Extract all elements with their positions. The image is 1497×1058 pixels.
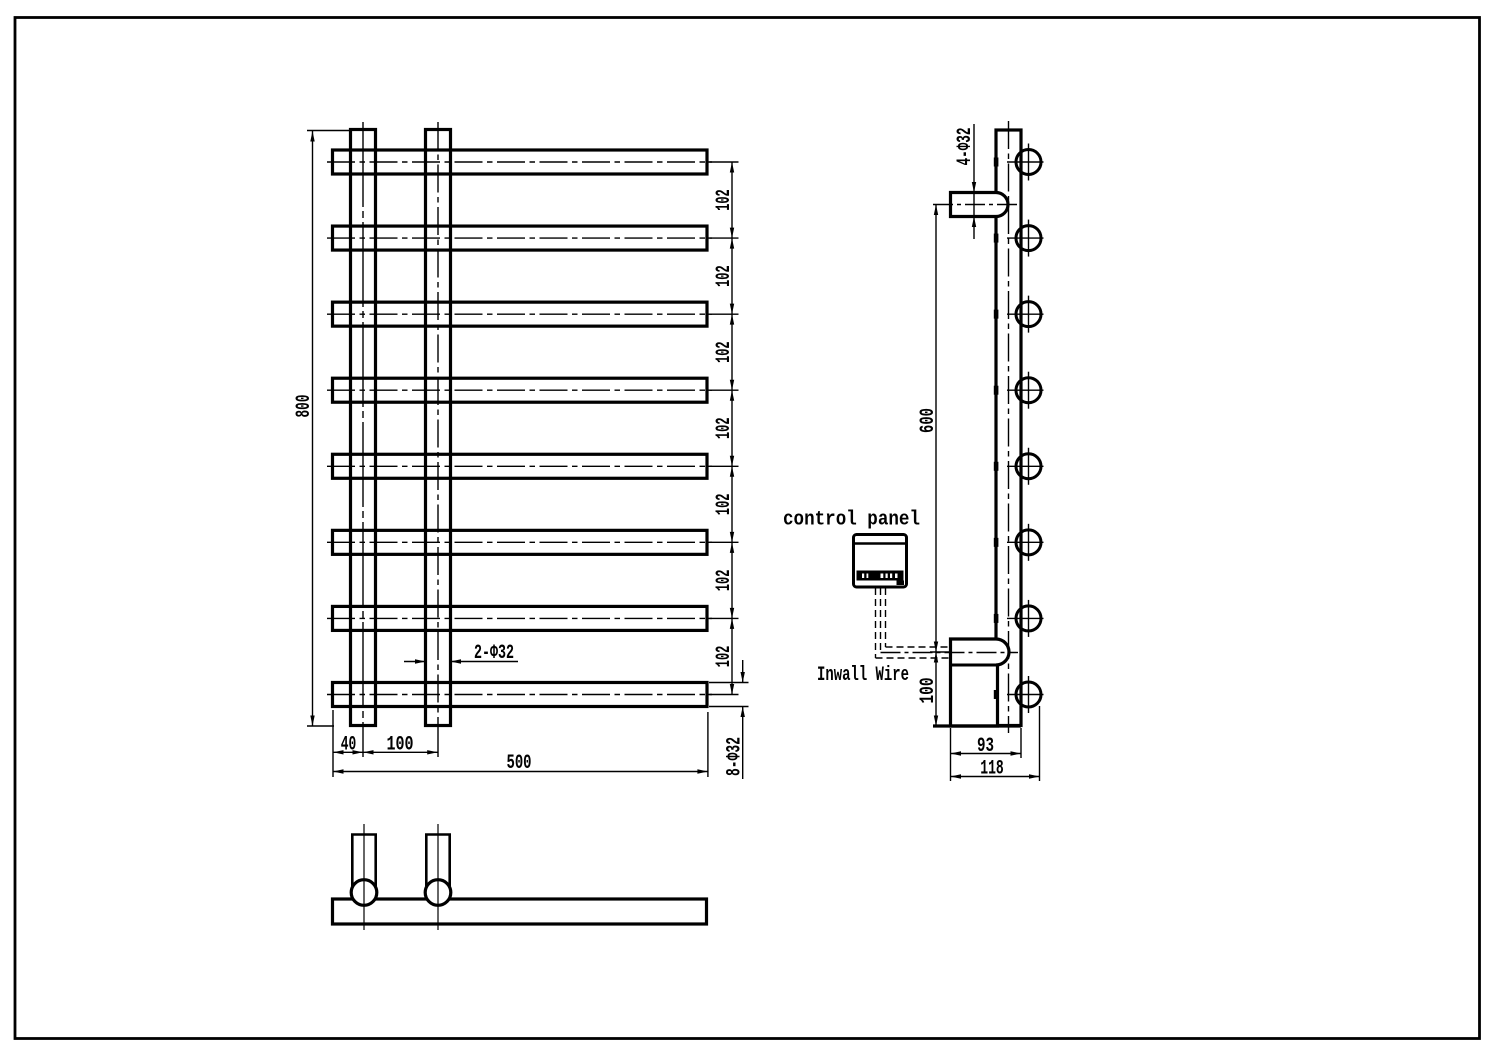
svg-text:102: 102 [713,494,736,516]
svg-text:102: 102 [713,417,736,439]
svg-text:102: 102 [713,646,736,668]
svg-text:93: 93 [977,735,994,758]
svg-text:40: 40 [341,734,357,757]
svg-text:800: 800 [293,395,316,418]
svg-text:500: 500 [507,752,532,775]
svg-text:8-Φ32: 8-Φ32 [724,737,747,776]
svg-text:100: 100 [387,734,414,757]
svg-text:102: 102 [713,189,736,211]
svg-text:4-Φ32: 4-Φ32 [954,128,977,166]
svg-text:100: 100 [917,678,940,704]
svg-text:Inwall Wire: Inwall Wire [817,664,909,687]
svg-text:2-Φ32: 2-Φ32 [474,642,514,665]
svg-text:102: 102 [713,570,736,592]
svg-text:102: 102 [713,341,736,363]
svg-text:600: 600 [917,408,940,433]
svg-text:control panel: control panel [783,509,920,532]
svg-text:102: 102 [713,265,736,287]
svg-text:118: 118 [980,758,1004,781]
